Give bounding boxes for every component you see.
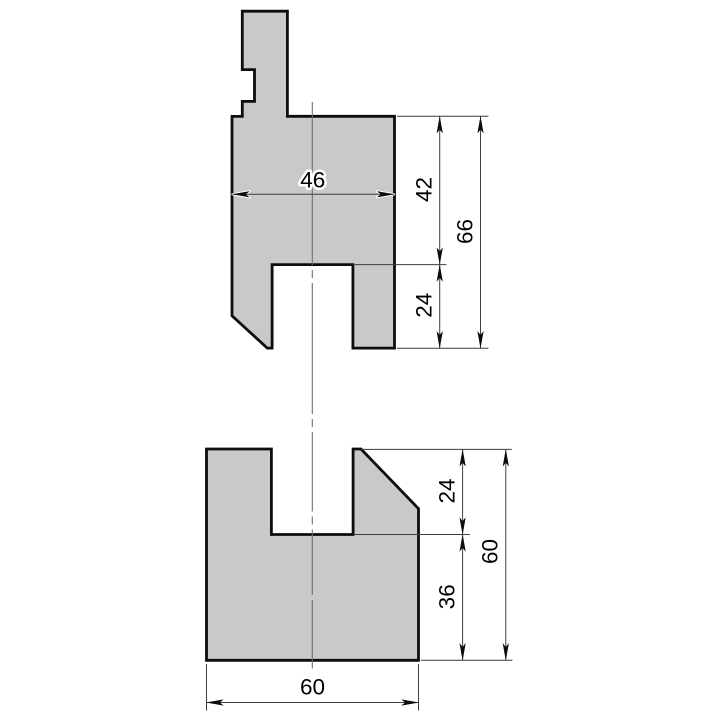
svg-text:46: 46 — [300, 167, 325, 192]
svg-text:24: 24 — [412, 293, 437, 318]
svg-text:24: 24 — [434, 478, 459, 503]
svg-text:60: 60 — [478, 539, 503, 564]
svg-text:42: 42 — [412, 177, 437, 202]
svg-text:66: 66 — [452, 219, 477, 244]
svg-text:36: 36 — [434, 584, 459, 609]
svg-text:60: 60 — [300, 675, 325, 700]
